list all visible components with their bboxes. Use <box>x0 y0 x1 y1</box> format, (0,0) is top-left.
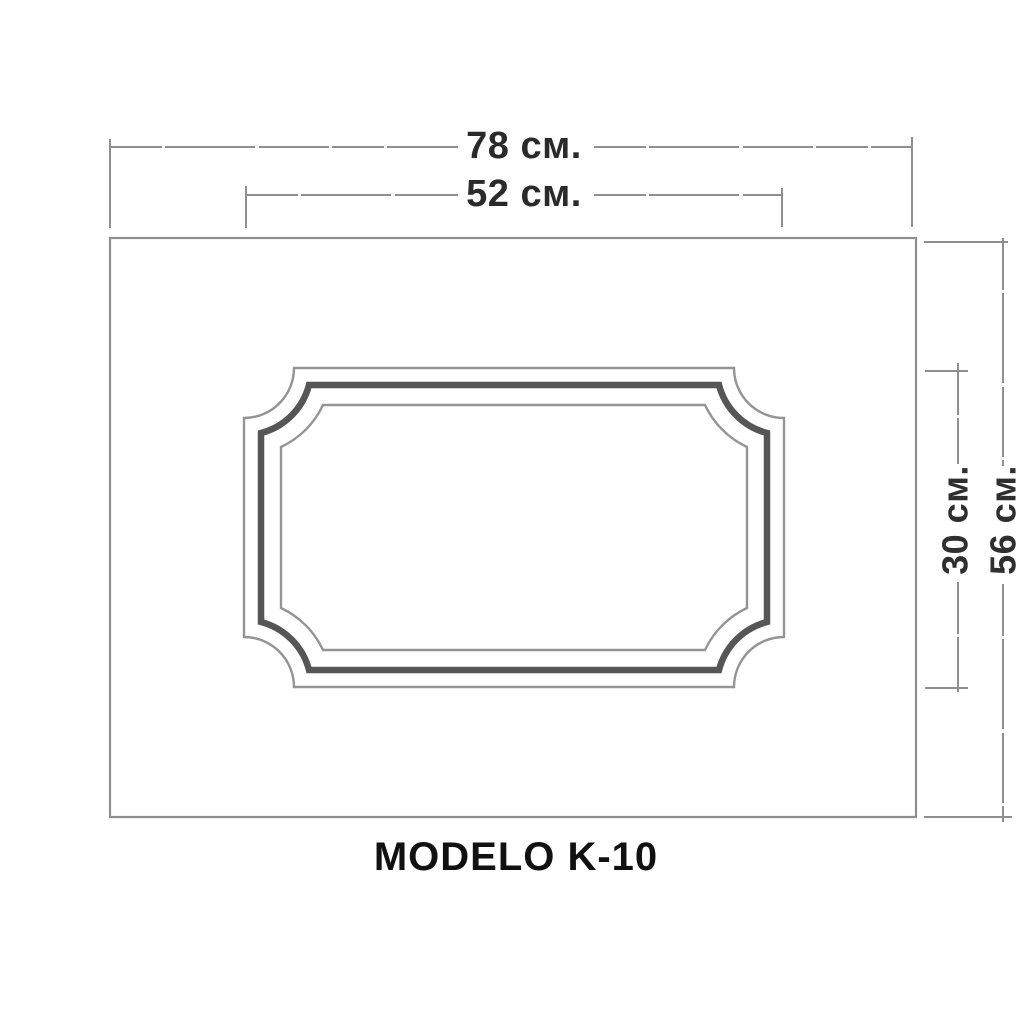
dim-outer-width-label: 78 см. <box>466 125 582 167</box>
frame-outer-line <box>244 368 784 687</box>
dim-inner-width: 52 см. <box>246 173 782 228</box>
dim-inner-height: 30 см. <box>925 363 976 692</box>
model-title: MODELO K-10 <box>374 835 658 879</box>
diagram-canvas: 78 см. 52 см. 30 см. 56 см. MODELO <box>0 0 1024 1024</box>
frame-inner-line <box>281 405 747 650</box>
dim-outer-height-label: 56 см. <box>983 465 1024 575</box>
technical-drawing-svg: 78 см. 52 см. 30 см. 56 см. MODELO <box>0 0 1024 1024</box>
dim-inner-width-label: 52 см. <box>466 173 582 215</box>
decorative-frame <box>244 368 784 687</box>
dim-inner-height-label: 30 см. <box>935 465 976 575</box>
panel-outline <box>110 238 916 817</box>
frame-middle-line <box>261 385 767 670</box>
